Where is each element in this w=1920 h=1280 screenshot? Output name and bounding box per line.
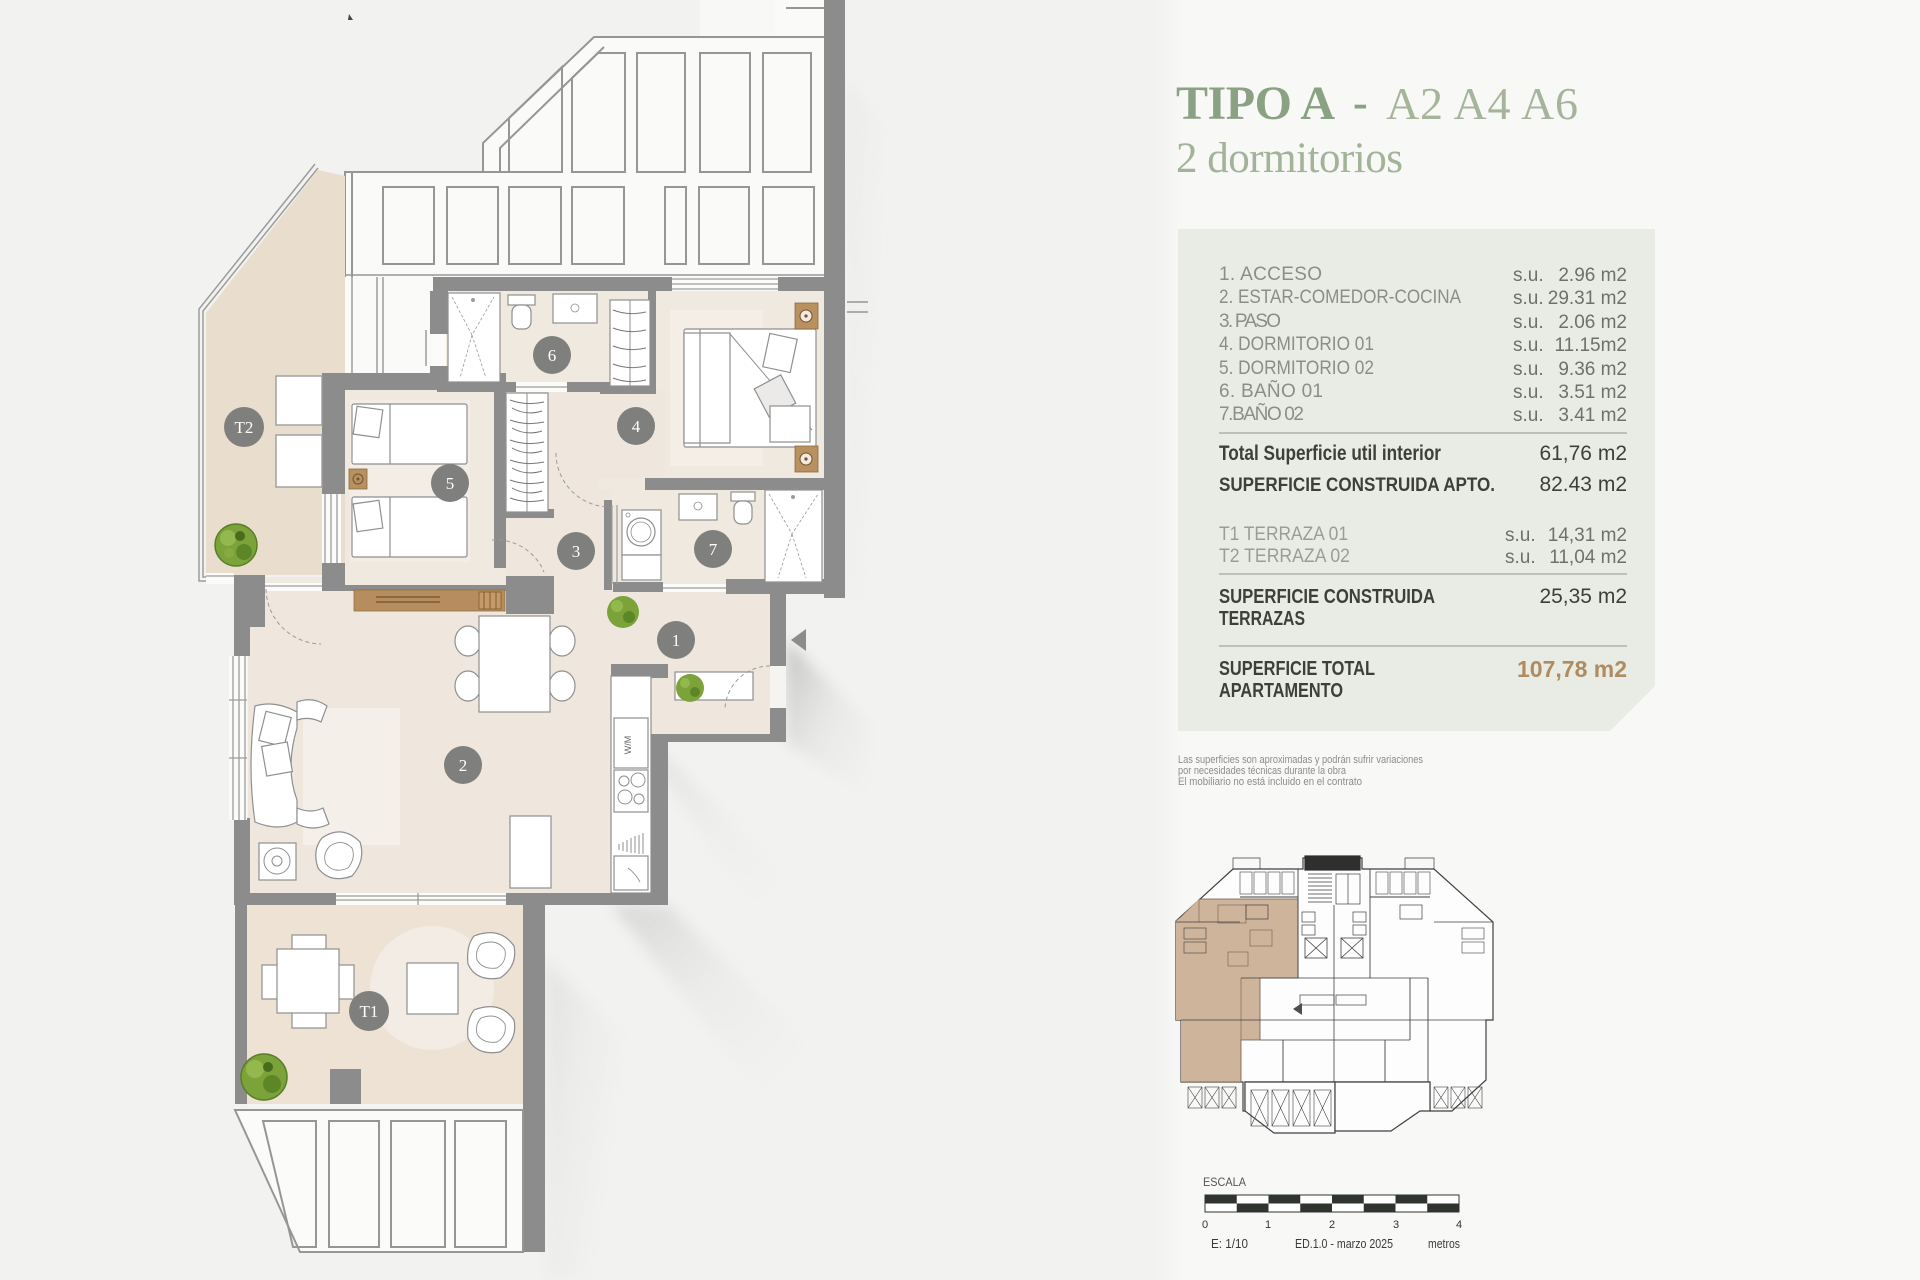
svg-text:5: 5 — [446, 474, 455, 493]
svg-text:3.51 m2: 3.51 m2 — [1558, 382, 1627, 403]
svg-text:9.36 m2: 9.36 m2 — [1558, 359, 1627, 380]
svg-text:TIPO A: TIPO A — [1176, 77, 1335, 130]
svg-text:T2 TERRAZA 02: T2 TERRAZA 02 — [1219, 546, 1350, 567]
svg-text:5. DORMITORIO 02: 5. DORMITORIO 02 — [1219, 358, 1374, 379]
svg-text:APARTAMENTO: APARTAMENTO — [1219, 680, 1343, 702]
svg-text:1. ACCESO: 1. ACCESO — [1219, 264, 1322, 285]
svg-text:2.06 m2: 2.06 m2 — [1558, 312, 1627, 333]
svg-text:ED.1.0 - marzo 2025: ED.1.0 - marzo 2025 — [1295, 1237, 1393, 1251]
svg-text:0: 0 — [1202, 1219, 1208, 1231]
svg-text:-: - — [1353, 78, 1368, 127]
svg-text:s.u.: s.u. — [1513, 288, 1544, 309]
svg-text:4. DORMITORIO 01: 4. DORMITORIO 01 — [1219, 334, 1374, 355]
svg-text:2. ESTAR-COMEDOR-COCINA: 2. ESTAR-COMEDOR-COCINA — [1219, 287, 1461, 308]
svg-text:14,31 m2: 14,31 m2 — [1548, 525, 1627, 546]
svg-text:2 dormitorios: 2 dormitorios — [1176, 135, 1403, 182]
svg-text:El mobiliario no está incluido: El mobiliario no está incluido en el con… — [1178, 776, 1362, 788]
svg-text:7.BAÑO 02: 7.BAÑO 02 — [1219, 403, 1304, 425]
svg-text:3. PASO: 3. PASO — [1219, 311, 1281, 332]
svg-text:T1: T1 — [360, 1002, 379, 1021]
svg-text:2.96 m2: 2.96 m2 — [1558, 265, 1627, 286]
svg-text:SUPERFICIE TOTAL: SUPERFICIE TOTAL — [1219, 658, 1375, 680]
svg-text:107,78 m2: 107,78 m2 — [1517, 656, 1627, 682]
svg-text:1: 1 — [672, 631, 681, 650]
svg-text:TERRAZAS: TERRAZAS — [1219, 608, 1305, 630]
svg-text:25,35 m2: 25,35 m2 — [1539, 585, 1627, 608]
svg-text:E: 1/10: E: 1/10 — [1211, 1237, 1248, 1251]
svg-text:ESCALA: ESCALA — [1203, 1177, 1246, 1189]
svg-text:3: 3 — [572, 542, 581, 561]
svg-text:11,04 m2: 11,04 m2 — [1549, 547, 1627, 568]
svg-text:T2: T2 — [235, 418, 254, 437]
svg-text:29.31 m2: 29.31 m2 — [1548, 288, 1627, 309]
svg-text:4: 4 — [1456, 1219, 1462, 1231]
svg-text:1: 1 — [1265, 1219, 1271, 1231]
svg-text:3: 3 — [1393, 1219, 1399, 1231]
svg-text:11.15m2: 11.15m2 — [1554, 335, 1627, 356]
svg-text:SUPERFICIE CONSTRUIDA APTO.: SUPERFICIE CONSTRUIDA APTO. — [1219, 475, 1495, 496]
svg-text:s.u.: s.u. — [1513, 405, 1544, 426]
svg-text:82.43 m2: 82.43 m2 — [1539, 473, 1627, 496]
svg-text:4: 4 — [632, 417, 641, 436]
svg-text:A2 A4 A6: A2 A4 A6 — [1386, 78, 1578, 129]
svg-text:s.u.: s.u. — [1513, 335, 1544, 356]
svg-text:3.41 m2: 3.41 m2 — [1558, 405, 1627, 426]
svg-text:s.u.: s.u. — [1513, 382, 1544, 403]
svg-text:SUPERFICIE CONSTRUIDA: SUPERFICIE CONSTRUIDA — [1219, 586, 1435, 608]
svg-text:2: 2 — [459, 756, 468, 775]
svg-text:6: 6 — [548, 346, 557, 365]
svg-text:2: 2 — [1329, 1219, 1335, 1231]
svg-text:61,76 m2: 61,76 m2 — [1539, 442, 1627, 465]
svg-text:s.u.: s.u. — [1513, 265, 1544, 286]
svg-text:metros: metros — [1428, 1237, 1460, 1251]
svg-text:7: 7 — [709, 540, 718, 559]
svg-text:Total Superficie util interior: Total Superficie util interior — [1219, 442, 1441, 465]
svg-text:s.u.: s.u. — [1505, 525, 1536, 546]
svg-text:s.u.: s.u. — [1513, 312, 1544, 333]
svg-text:6. BAÑO 01: 6. BAÑO 01 — [1219, 380, 1323, 402]
svg-text:W/M: W/M — [623, 736, 633, 755]
svg-text:T1 TERRAZA 01: T1 TERRAZA 01 — [1219, 524, 1348, 545]
svg-text:s.u.: s.u. — [1505, 547, 1536, 568]
svg-text:s.u.: s.u. — [1513, 359, 1544, 380]
